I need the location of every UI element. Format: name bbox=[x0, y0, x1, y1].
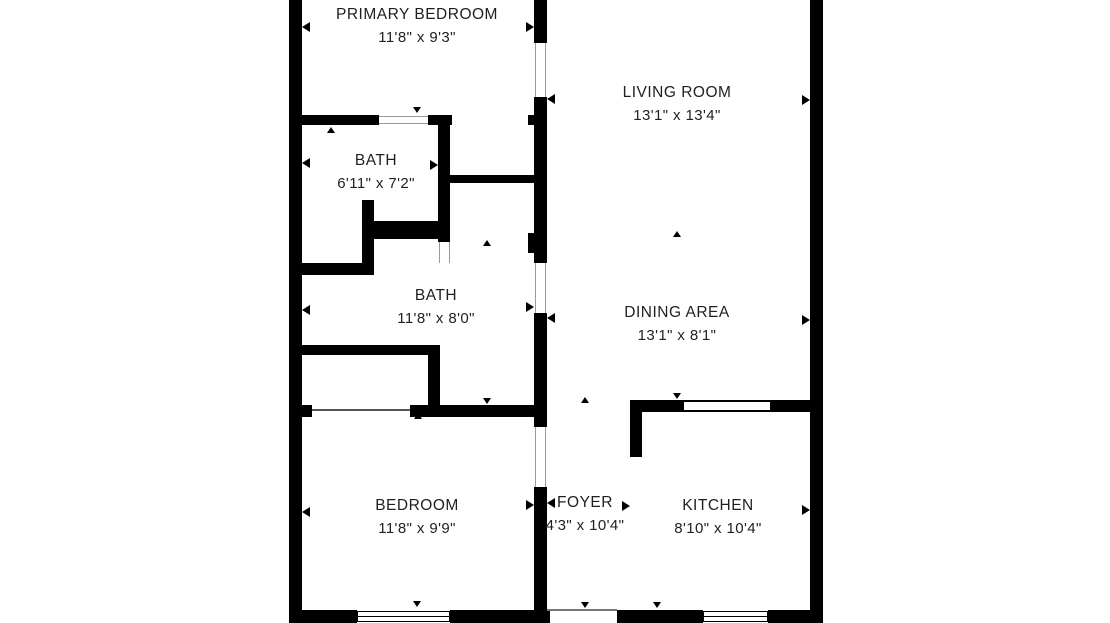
door-threshold bbox=[535, 43, 536, 97]
opening-marker-icon bbox=[653, 602, 661, 608]
wall-marker-icon bbox=[526, 500, 534, 510]
opening-marker-icon bbox=[581, 397, 589, 403]
wall-marker-icon bbox=[802, 315, 810, 325]
wall-marker-icon bbox=[302, 305, 310, 315]
room-dimensions: 11'8" x 8'0" bbox=[397, 307, 475, 330]
wall-segment bbox=[289, 0, 302, 623]
wall-segment bbox=[534, 0, 547, 43]
room-label-dining-area: DINING AREA 13'1" x 8'1" bbox=[624, 301, 729, 347]
room-name: DINING AREA bbox=[624, 301, 729, 324]
door-threshold bbox=[535, 427, 536, 487]
room-label-foyer: FOYER 4'3" x 10'4" bbox=[546, 491, 625, 537]
opening-marker-icon bbox=[581, 602, 589, 608]
room-dimensions: 8'10" x 10'4" bbox=[674, 517, 761, 540]
room-name: PRIMARY BEDROOM bbox=[336, 3, 498, 26]
wall-marker-icon bbox=[802, 505, 810, 515]
wall-segment bbox=[617, 610, 703, 623]
room-dimensions: 11'8" x 9'3" bbox=[336, 26, 498, 49]
wall-segment bbox=[630, 400, 642, 457]
door-threshold bbox=[545, 427, 546, 487]
wall-nub bbox=[528, 233, 535, 253]
door-threshold bbox=[439, 242, 440, 263]
wall-segment bbox=[289, 263, 374, 275]
wall-marker-icon bbox=[430, 160, 438, 170]
room-label-kitchen: KITCHEN 8'10" x 10'4" bbox=[674, 494, 761, 540]
wall-segment bbox=[772, 400, 823, 412]
wall-marker-icon bbox=[302, 22, 310, 32]
wall-marker-icon bbox=[526, 22, 534, 32]
floor-plan: PRIMARY BEDROOM 11'8" x 9'3" LIVING ROOM… bbox=[0, 0, 1110, 623]
opening-marker-icon bbox=[327, 127, 335, 133]
wall-nub bbox=[528, 115, 535, 125]
wall-marker-icon bbox=[547, 313, 555, 323]
wall-marker-icon bbox=[526, 302, 534, 312]
wall-segment bbox=[289, 405, 312, 417]
room-dimensions: 13'1" x 13'4" bbox=[623, 104, 732, 127]
room-name: FOYER bbox=[546, 491, 625, 514]
room-name: KITCHEN bbox=[674, 494, 761, 517]
room-dimensions: 6'11" x 7'2" bbox=[337, 172, 415, 195]
entry-opening-line bbox=[547, 609, 617, 611]
door-threshold bbox=[379, 123, 428, 124]
opening-marker-icon bbox=[414, 413, 422, 419]
wall-segment bbox=[444, 175, 540, 183]
room-label-bath-1: BATH 6'11" x 7'2" bbox=[337, 149, 415, 195]
room-label-bedroom: BEDROOM 11'8" x 9'9" bbox=[375, 494, 459, 540]
room-name: BEDROOM bbox=[375, 494, 459, 517]
room-label-living-room: LIVING ROOM 13'1" x 13'4" bbox=[623, 81, 732, 127]
room-label-bath-2: BATH 11'8" x 8'0" bbox=[397, 284, 475, 330]
opening-marker-icon bbox=[483, 240, 491, 246]
door-threshold bbox=[535, 263, 536, 313]
room-name: BATH bbox=[337, 149, 415, 172]
slider-opening-line bbox=[312, 409, 410, 411]
wall-segment bbox=[362, 221, 448, 239]
window-glass-line bbox=[704, 616, 767, 618]
wall-segment bbox=[289, 610, 357, 623]
wall-marker-icon bbox=[302, 507, 310, 517]
room-label-primary-bedroom: PRIMARY BEDROOM 11'8" x 9'3" bbox=[336, 3, 498, 49]
wall-segment bbox=[289, 115, 379, 125]
window-symbol bbox=[703, 611, 768, 622]
pass-through-window bbox=[682, 400, 772, 412]
wall-marker-icon bbox=[302, 158, 310, 168]
door-threshold bbox=[545, 43, 546, 97]
opening-marker-icon bbox=[673, 231, 681, 237]
wall-segment bbox=[410, 405, 547, 417]
wall-segment bbox=[768, 610, 823, 623]
wall-segment bbox=[289, 345, 440, 355]
opening-marker-icon bbox=[483, 398, 491, 404]
room-dimensions: 4'3" x 10'4" bbox=[546, 514, 625, 537]
wall-marker-icon bbox=[802, 95, 810, 105]
room-dimensions: 11'8" x 9'9" bbox=[375, 517, 459, 540]
door-threshold bbox=[449, 242, 450, 263]
door-threshold bbox=[545, 263, 546, 313]
opening-marker-icon bbox=[673, 393, 681, 399]
wall-segment bbox=[810, 0, 823, 623]
window-glass-line bbox=[358, 616, 449, 618]
room-name: LIVING ROOM bbox=[623, 81, 732, 104]
door-threshold bbox=[379, 116, 428, 117]
window-symbol bbox=[357, 611, 450, 622]
room-dimensions: 13'1" x 8'1" bbox=[624, 324, 729, 347]
wall-marker-icon bbox=[547, 94, 555, 104]
opening-marker-icon bbox=[413, 107, 421, 113]
room-name: BATH bbox=[397, 284, 475, 307]
opening-marker-icon bbox=[413, 601, 421, 607]
